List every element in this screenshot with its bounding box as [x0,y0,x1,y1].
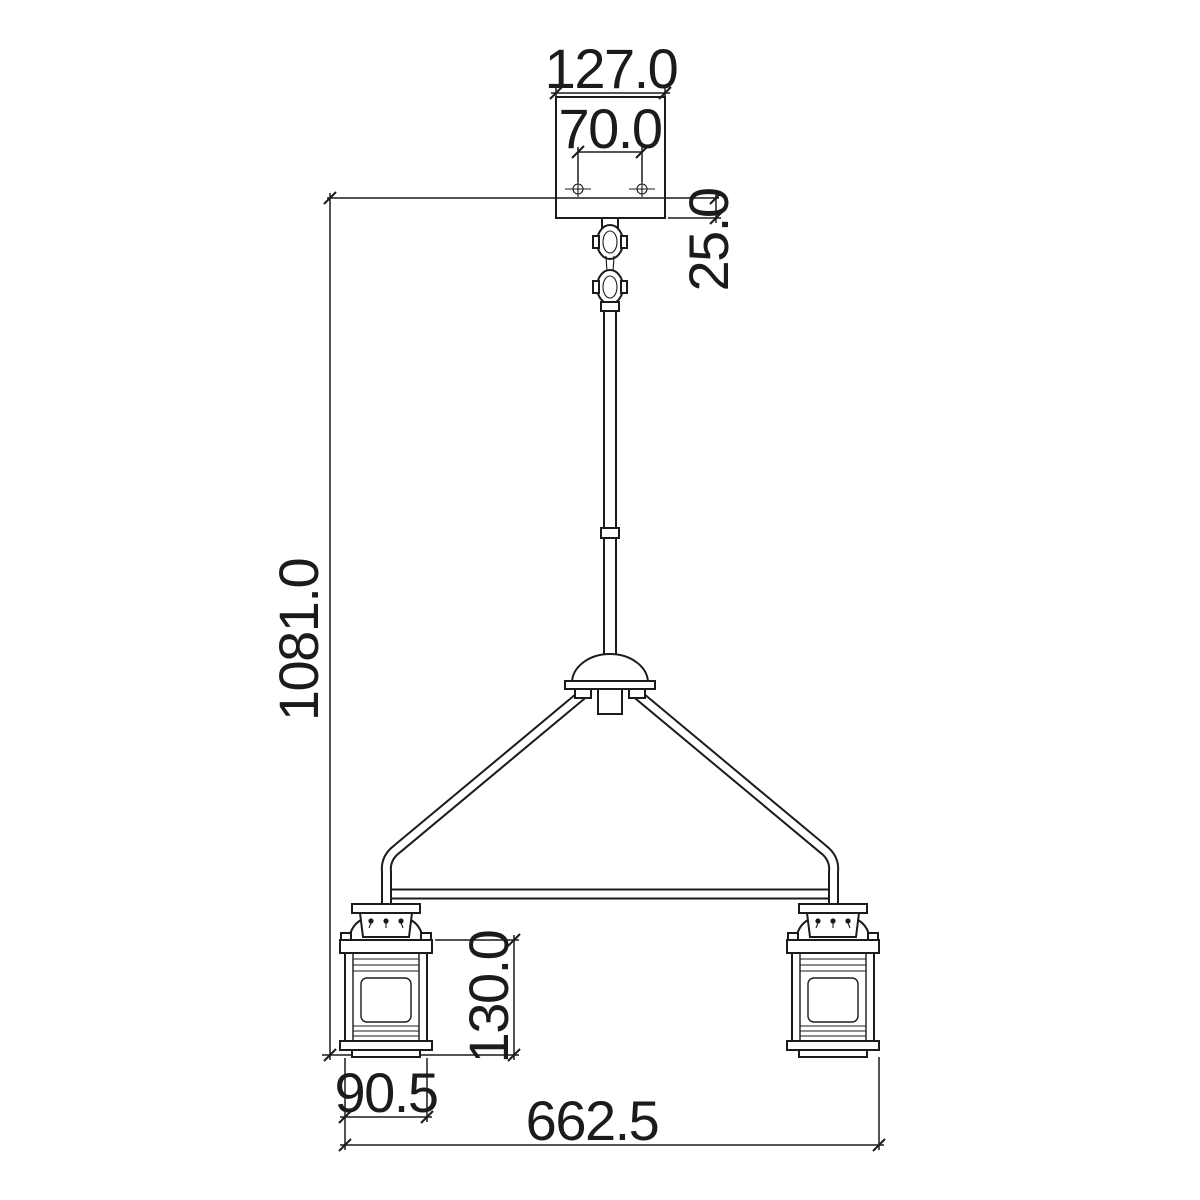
dim-overall-height-label: 1081.0 [267,559,330,721]
dim-lantern-width-label: 90.5 [335,1061,438,1124]
dim-mount-hole-spacing-label: 70.0 [559,97,662,160]
hanging-chain [593,218,627,311]
stem-rod [601,311,619,656]
center-dome [565,654,655,714]
lantern-base [352,1050,420,1057]
lantern-bottom-band [340,1041,432,1050]
right-arm [637,694,834,906]
dim-lantern-width: 90.5 [335,1058,438,1124]
dim-fixture-width-label: 662.5 [526,1089,659,1152]
technical-drawing-page: 127.0 70.0 25.0 1081.0 130.0 [0,0,1200,1200]
lantern-collar-flange [352,904,420,913]
dim-lantern-height: 130.0 [420,931,520,1064]
dim-overall-height: 1081.0 [267,192,352,1061]
dim-canopy-width: 127.0 [545,37,678,100]
pendant-light-dimension-drawing: 127.0 70.0 25.0 1081.0 130.0 [0,0,1200,1200]
stem-coupler [601,528,619,538]
dim-canopy-height: 25.0 [668,189,740,292]
left-arm [386,694,583,906]
dim-lantern-height-label: 130.0 [457,931,520,1064]
chain-link-lower [597,270,623,304]
dim-canopy-height-label: 25.0 [677,189,740,292]
dome-socket [598,689,622,714]
chain-link-upper [597,225,623,259]
dim-canopy-width-label: 127.0 [545,37,678,100]
lantern-body [345,953,427,1041]
left-lantern [340,904,432,1057]
right-lantern [787,904,879,1057]
lantern-top-band [340,940,432,953]
